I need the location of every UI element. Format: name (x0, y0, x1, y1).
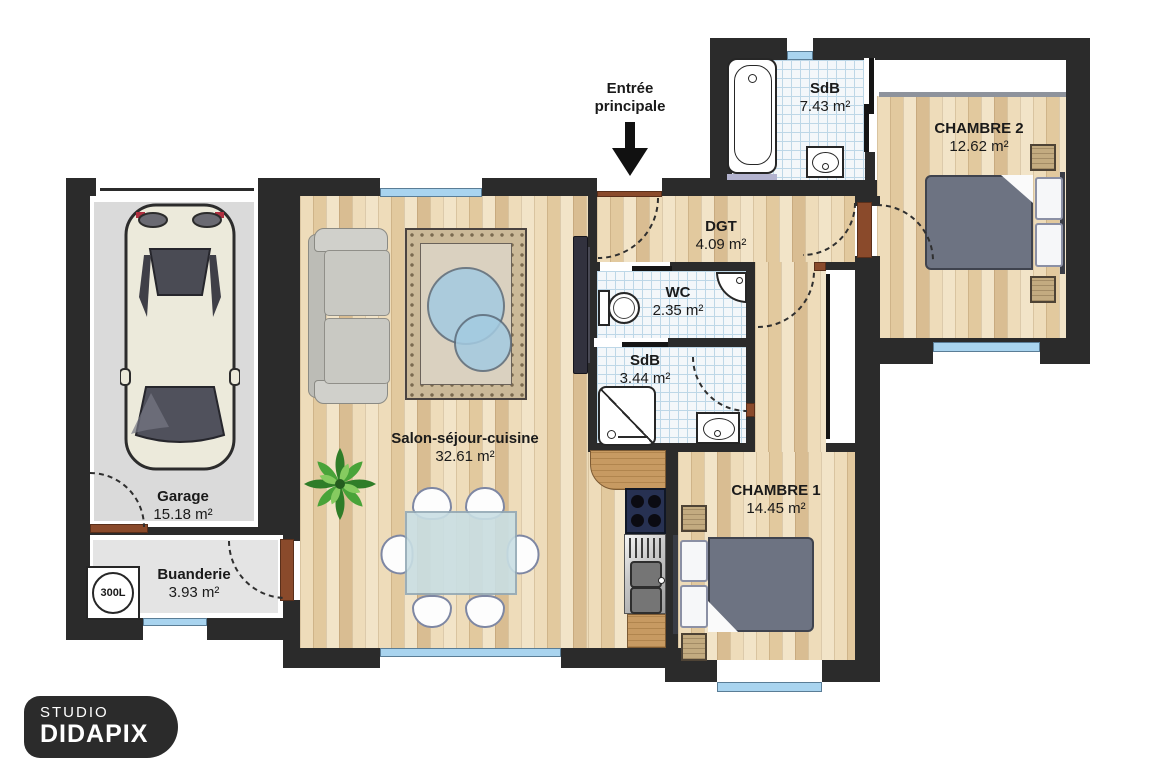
nightstand (1030, 276, 1056, 303)
door-buanderie-salon (280, 539, 294, 601)
entrance-label-line2: principale (595, 98, 666, 116)
burner (648, 514, 661, 527)
door-jamb-sdb (746, 403, 755, 417)
sofa (308, 228, 390, 404)
closet-chambre2 (879, 60, 1066, 96)
washbasin-tap (822, 163, 829, 170)
burner (631, 495, 644, 508)
sink-tap (658, 577, 665, 584)
pillow (680, 585, 708, 628)
sink-drainer (629, 538, 661, 558)
window (380, 188, 482, 197)
door-garage-buanderie (90, 524, 148, 533)
closet-chambre2-rail (879, 92, 1066, 97)
tv (573, 236, 588, 374)
entrance-label: Entrée principale (595, 80, 666, 116)
dining-table (405, 511, 517, 595)
wall (283, 648, 380, 668)
sink-basin (630, 587, 662, 614)
entrance-door-sill (597, 191, 662, 197)
plant (302, 446, 378, 522)
window (143, 626, 207, 639)
kitchen-counter (590, 450, 666, 490)
door-jamb-chambre1 (814, 262, 826, 271)
cooktop (625, 488, 666, 534)
bed-chambre2 (925, 175, 1033, 270)
room-label-chambre2: CHAMBRE 2 12.62 m² (934, 120, 1023, 156)
washbasin-tap (714, 430, 721, 437)
kitchen-counter (627, 614, 666, 648)
burner (648, 495, 661, 508)
window (933, 352, 1040, 364)
garage-door-line (100, 188, 254, 191)
kitchen-sink (624, 534, 666, 614)
entrance-label-line1: Entrée (595, 80, 666, 98)
wall (66, 618, 143, 640)
sliding-door-sdb-top (869, 58, 874, 114)
nightstand (681, 505, 707, 532)
window (717, 682, 822, 692)
floor-plan: 300L (0, 0, 1152, 782)
window (380, 657, 561, 669)
sink-basin (630, 561, 662, 588)
car (120, 197, 240, 477)
room-label-salon: Salon-séjour-cuisine 32.61 m² (391, 430, 539, 466)
room-label-dgt: DGT 4.09 m² (696, 218, 747, 254)
washbasin (696, 412, 740, 444)
window (717, 692, 822, 705)
window (933, 342, 1040, 352)
window (787, 38, 813, 51)
washbasin (806, 146, 844, 178)
pillow (1035, 177, 1063, 220)
pillow (680, 540, 708, 582)
toilet-bowl (608, 292, 640, 324)
wall (710, 180, 877, 196)
window (787, 51, 813, 60)
room-label-chambre1: CHAMBRE 1 14.45 m² (731, 482, 820, 518)
water-heater: 300L (86, 566, 140, 620)
shower-drain (607, 430, 616, 439)
window (143, 618, 207, 626)
bathtub (727, 58, 777, 174)
bed-headboard (673, 535, 678, 634)
wall (746, 262, 755, 452)
wall (826, 443, 855, 452)
rug (405, 228, 527, 400)
shower (598, 386, 656, 446)
room-label-wc: WC 2.35 m² (653, 284, 704, 320)
water-heater-label: 300L (94, 587, 132, 599)
wall (855, 256, 880, 682)
door-chambre2 (857, 202, 872, 258)
shower-line (618, 436, 648, 438)
studio-didapix-logo: STUDIO DIDAPIX (24, 696, 178, 758)
entrance-opening (597, 178, 662, 192)
sliding-door-wc (632, 266, 672, 271)
sliding-door-sdb-top (864, 104, 869, 152)
wall (66, 178, 96, 196)
wall (665, 660, 717, 682)
wall (826, 262, 855, 270)
bath-mat (727, 174, 777, 180)
room-label-sdb-top: SdB 7.43 m² (800, 80, 851, 116)
closet-corridor (826, 270, 855, 443)
entrance-arrow-icon (612, 122, 648, 176)
room-label-buanderie: Buanderie 3.93 m² (157, 566, 230, 602)
nightstand (681, 633, 707, 661)
wall (258, 178, 300, 535)
sofa-cushion (324, 250, 390, 316)
water-heater-tank: 300L (92, 572, 134, 614)
sofa-cushion (324, 318, 390, 384)
window (380, 648, 561, 657)
room-label-garage: Garage 15.18 m² (153, 488, 212, 524)
sliding-door-sdb (622, 342, 668, 347)
room-label-sdb-small: SdB 3.44 m² (620, 352, 671, 388)
wall (482, 178, 597, 196)
garage-door-opening (96, 178, 258, 196)
room-chambre1-neck (755, 262, 826, 452)
closet-corridor-door (826, 274, 830, 439)
bathtub-drain (748, 74, 757, 83)
burner (631, 514, 644, 527)
wall (1066, 38, 1090, 364)
rug-circle (454, 314, 512, 372)
nightstand (1030, 144, 1056, 171)
logo-studio-text: STUDIO (40, 704, 178, 721)
window (380, 178, 482, 188)
logo-name-text: DIDAPIX (40, 721, 178, 749)
wall (710, 38, 1090, 60)
pillow (1035, 223, 1063, 267)
sofa-armrest (314, 228, 388, 252)
washbasin-tap (736, 277, 743, 284)
washbasin-bowl (703, 418, 735, 440)
